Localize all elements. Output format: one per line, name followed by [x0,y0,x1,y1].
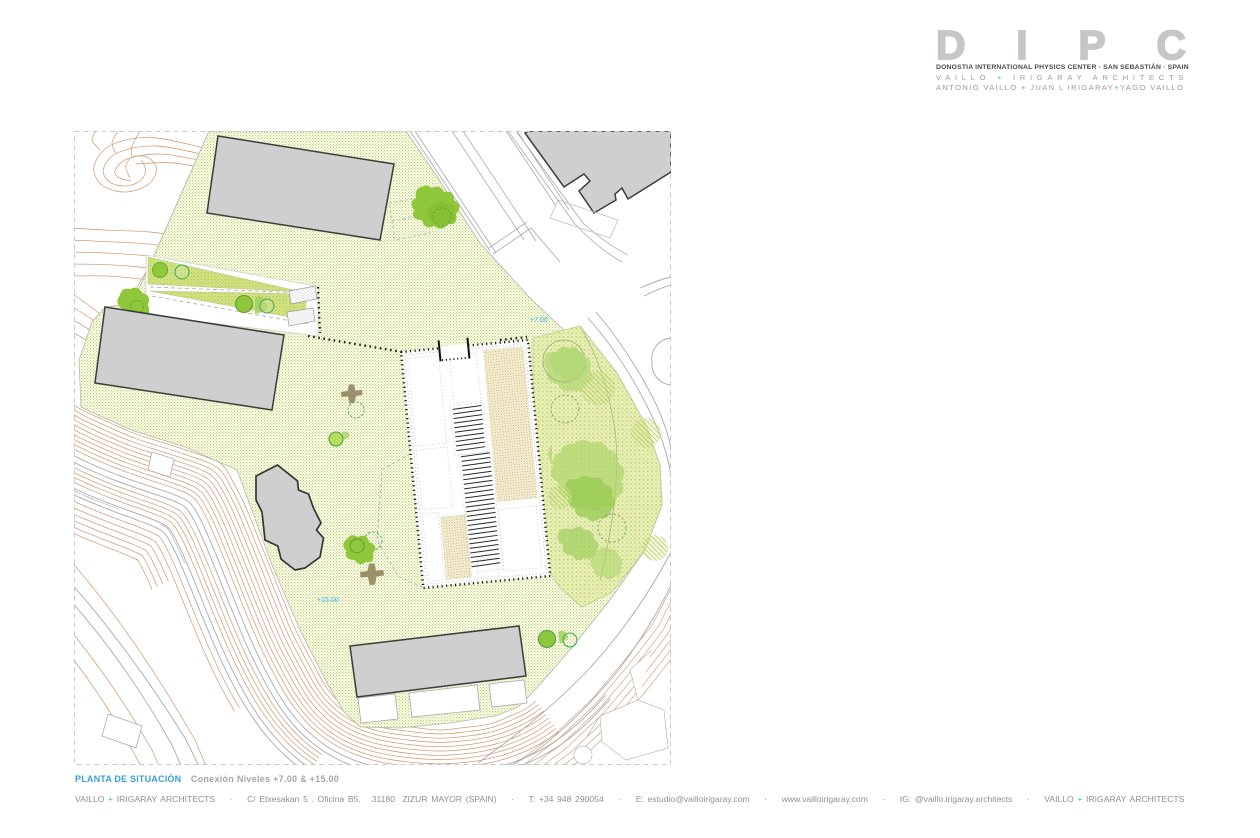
svg-text:+15.00: +15.00 [317,597,339,604]
svg-text:+7.00: +7.00 [530,317,548,324]
